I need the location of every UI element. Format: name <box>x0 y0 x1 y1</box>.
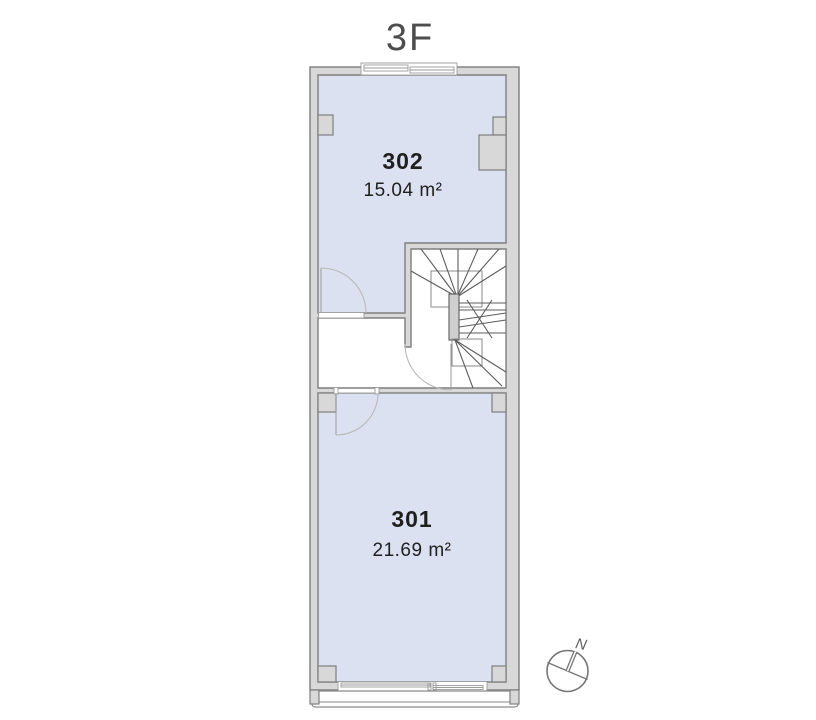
pillar-302-right-upper <box>493 117 506 135</box>
room-302-label: 302 <box>382 148 423 174</box>
room-301 <box>318 393 506 682</box>
pillar-302-left <box>318 115 333 135</box>
stair-newel <box>449 294 459 340</box>
sliding-window-top <box>361 63 457 75</box>
balcony-window <box>338 682 487 692</box>
north-indicator: N <box>547 635 588 691</box>
room-302-area: 15.04 m² <box>364 180 443 201</box>
room-301-label: 301 <box>391 506 432 532</box>
room-301-area: 21.69 m² <box>373 540 452 561</box>
pillar-301-top-left <box>318 393 336 412</box>
floor-title: 3F <box>386 17 434 59</box>
balcony-side-wall-left <box>310 690 319 704</box>
floor-plan-drawing: 3F <box>0 0 816 720</box>
floor-plan-page: 3F <box>0 0 816 720</box>
balcony-side-wall-right <box>510 690 519 704</box>
compass-north-label: N <box>574 635 588 654</box>
balcony <box>310 690 519 707</box>
pillar-301-bottom-left <box>318 666 336 682</box>
pillar-301-top-right <box>492 393 506 412</box>
pillar-301-bottom-right <box>492 666 506 682</box>
north-needle-icon <box>568 652 576 672</box>
pillar-302-right-lower <box>479 135 506 170</box>
